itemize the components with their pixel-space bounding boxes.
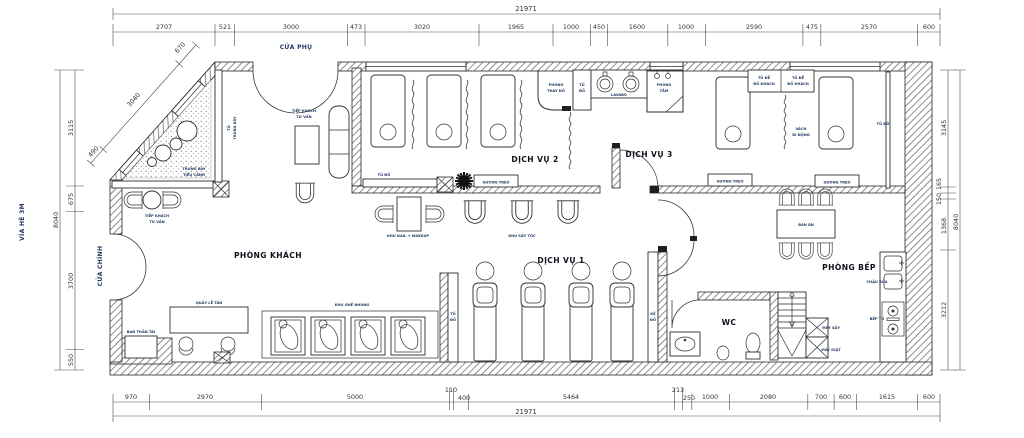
dim-left-2: 3700 [67,273,75,289]
guest-cabinet-label-1: TỦ ĐỂ [758,75,771,80]
nail-makeup-area: KHU NAIL + MAKEUP [375,197,444,238]
dimension-chain-bottom: 21971 970 2970 5000 110 400 5464 213 250… [113,386,940,422]
altar: BAN THẦN TÀI [125,329,157,358]
side-door-leaf [253,71,295,113]
dim-top-2: 3000 [283,23,299,31]
dining-table-group: BÀN ĂN [777,189,835,259]
curtain [520,80,522,149]
dim-diag-1: 3040 [125,91,142,108]
dim-bottom-12: 1615 [879,393,895,401]
dim-right-2: 150 [935,193,943,205]
dim-top-0: 2707 [156,23,172,31]
dryer-chair [557,201,580,224]
dim-bottom-5: 5464 [563,393,579,401]
mirror-label: GƯƠNG TREO [482,181,509,185]
dim-bottom-3: 110 [445,386,457,394]
dim-top-7: 450 [593,23,605,31]
reception-seating-label-2: TƯ VẤN [149,219,164,224]
column-pillar [213,181,229,197]
dimension-chain-left: 3115 675 3700 550 8040 VỈA HÈ 3M [18,70,84,370]
dining-chair [798,189,814,205]
shelf-label-2: ĐỒ [650,317,656,322]
dim-bottom-13: 600 [923,393,935,401]
locker-cabinet: TỦ ĐỒ [573,70,591,110]
massage-bed [481,75,515,147]
kitchen-label: PHÒNG BẾP [822,262,876,272]
hair-dry-area-label: KHU SẤY TÓC [508,233,536,238]
reception-desk-label: QUẦY LỄ TÂN [196,300,223,305]
washer-unit: MÁY GIẶT [806,337,841,358]
dim-right-1: 165 [935,178,943,190]
round-table [143,191,161,209]
dim-bottom-1: 2970 [197,393,213,401]
curtain [412,80,414,149]
lavabo-label: LAVABO [611,93,627,97]
main-door-leaf [113,267,146,300]
lobby-label: PHÒNG KHÁCH [234,251,302,260]
guest-cabinet-label-1: TỦ ĐỂ [792,75,805,80]
service1-label: DỊCH VỤ 1 [537,256,584,265]
dim-bottom-7: 250 [683,394,695,402]
locker-label: TỦ ĐỒ [877,121,890,126]
reception-seating-label-2: TƯ VẤN [296,114,311,119]
dining-chair [817,189,833,205]
wc-sink [670,332,700,356]
dim-right-total: 8040 [952,214,960,230]
side-door-label: CỬA PHỤ [280,43,313,51]
mirror: GƯƠNG TREO [708,174,752,186]
mirror-label: GƯƠNG TREO [716,180,743,184]
velvet-chair-area: KHU GHẾ NHUNG [262,301,438,358]
main-door-leaf [113,234,146,267]
floor-plan-drawing: 21971 2707 521 3000 473 3020 1965 1000 4… [0,0,1024,438]
dim-total-top: 21971 [515,5,537,13]
locker-label-1: TỦ [579,82,584,87]
guest-cabinet-label-2: ĐỒ KHÁCH [753,81,775,86]
dryer-label: MÁY SẤY [822,325,840,330]
dimension-chain-right: 3145 165 150 1368 3212 8040 [935,70,966,370]
guest-cabinet-label-2: ĐỒ KHÁCH [787,81,809,86]
dim-total-bottom: 21971 [515,408,537,416]
reception-desk: QUẦY LỄ TÂN [170,300,248,355]
dining-chair [779,189,795,205]
kitchen-sink-label: CHẬU RỬA [866,279,887,284]
armchair [295,183,315,203]
dim-bottom-2: 5000 [347,393,363,401]
washer-label: MÁY GIẶT [821,347,841,352]
shelf-label-1: KỆ [650,311,656,316]
dim-left-0: 3115 [67,120,75,136]
dim-bottom-10: 700 [815,393,827,401]
dining-chair [798,243,814,259]
dim-bottom-0: 970 [125,393,137,401]
dim-right-0: 3145 [940,120,948,136]
styling-station [569,262,593,361]
locker-shelf [363,179,437,187]
armchair [163,191,181,209]
wc-toilet [746,333,760,359]
dim-top-4: 3020 [414,23,430,31]
dim-right-3: 1368 [940,218,948,234]
locker-label: TỦ ĐỒ [378,172,391,177]
recliner-chair [311,317,345,355]
dining-table-label: BÀN ĂN [798,222,814,227]
reception-seating-label-1: TIẾP KHÁCH [292,107,316,113]
partition-label-2: DI ĐỘNG [792,132,810,137]
wc-urinal [717,346,729,360]
dryer-unit: MÁY SẤY [806,318,840,337]
wc-room: WC [670,318,760,360]
massage-bed [716,77,750,149]
curtain [466,80,468,149]
service3: DỊCH VỤ 3 TỦ ĐỂ ĐỒ KHÁCH TỦ ĐỂ ĐỒ KHÁCH … [625,70,890,188]
altar-label: BAN THẦN TÀI [127,329,156,334]
velvet-chairs-label: KHU GHẾ NHUNG [335,301,370,307]
side-door-leaf [296,71,338,113]
column-pillar [214,352,230,363]
bathroom: PHÒNG TẮM [647,70,683,112]
nail-area-label: KHU NAIL + MAKEUP [387,234,429,238]
dim-bottom-9: 2080 [760,393,776,401]
curtain [569,112,571,169]
dim-left-total: 8040 [52,212,60,228]
dim-diag-2: 490 [86,144,100,158]
dim-top-12: 2570 [861,23,877,31]
side-table [295,126,319,164]
curtain [784,95,786,149]
locker-label-1: TỦ [450,311,455,316]
dim-left-3: 550 [67,354,75,366]
recliner-chair [391,317,425,355]
garden-stone [177,121,197,141]
recliner-chair [351,317,385,355]
display-cabinet [215,70,222,182]
bathroom-label-2: TẮM [660,88,669,93]
armchair [124,191,142,209]
mirror: GƯƠNG TREO [815,175,859,187]
armchair [426,205,444,223]
garden-stone [155,145,171,161]
dim-top-11: 475 [806,23,818,31]
styling-station [521,262,545,361]
dryer-chair [511,201,534,224]
massage-bed [371,75,405,147]
plant-symbol [455,172,473,190]
dining-chair [779,243,795,259]
dim-diag-0: 670 [173,41,187,55]
dim-top-1: 521 [219,23,231,31]
mirror: GƯƠNG TREO [474,175,518,187]
display-garden: TRƯNG BÀY TIỂU CẢNH TỦ TRUNG BÀY [112,70,237,197]
wc-door-leaf [672,300,700,328]
dim-bottom-6: 213 [672,386,684,394]
lavabo-counter: LAVABO [591,70,647,98]
dim-top-8: 1600 [629,23,645,31]
changing-room: PHÒNG THAY ĐỒ [538,70,573,110]
column-pillar [437,177,453,192]
dim-top-5: 1965 [508,23,524,31]
reception-seating-label-1: TIẾP KHÁCH [145,212,169,218]
armchair [375,205,393,223]
dining-chair [817,243,833,259]
garden-label-2: TIỂU CẢNH [183,172,205,177]
main-door-label: CỬA CHÍNH [96,246,104,287]
dim-bottom-8: 1000 [702,393,718,401]
wardrobe-counter [886,72,890,188]
massage-bed [819,77,853,149]
hair-dry-area: KHU SẤY TÓC [464,201,580,238]
dim-top-9: 1000 [678,23,694,31]
service2: DỊCH VỤ 2 TỦ ĐỒ GƯƠNG TREO PHÒNG THAY ĐỒ [363,70,683,192]
dimension-chain-top: 21971 2707 521 3000 473 3020 1965 1000 4… [113,5,940,46]
dim-top-3: 473 [350,23,362,31]
dim-top-13: 600 [923,23,935,31]
display-cabinet-label-1: TỦ [226,125,231,130]
interior-door-leaf [658,200,694,236]
changing-room-label-1: PHÒNG [549,82,564,87]
guest-cabinet: TỦ ĐỂ ĐỒ KHÁCH TỦ ĐỂ ĐỒ KHÁCH [748,70,814,92]
dim-right-4: 3212 [940,302,948,318]
bathroom-label-1: PHÒNG [657,82,672,87]
garden-ledge [112,181,215,188]
dim-bottom-4: 400 [458,394,470,402]
garden-stone [148,158,157,167]
partition-label-1: VÁCH [796,126,807,131]
garden-label-1: TRƯNG BÀY [182,166,206,171]
service3-label: DỊCH VỤ 3 [625,150,672,159]
display-cabinet-label-2: TRUNG BÀY [232,116,237,140]
changing-room-label-2: THAY ĐỒ [547,88,565,93]
dim-top-10: 2590 [746,23,762,31]
dryer-chair [464,201,487,224]
mirror-label: GƯƠNG TREO [823,181,850,185]
garden-stone [170,138,182,150]
sofa [329,106,349,178]
recliner-chair [271,317,305,355]
locker-label-2: ĐỒ [579,88,585,93]
dim-top-6: 1000 [563,23,579,31]
window-top-1 [366,62,466,71]
styling-station [610,262,634,361]
dim-left-1: 675 [67,193,75,205]
massage-bed [427,75,461,147]
wc-label: WC [722,318,737,327]
stairs: MÁY SẤY MÁY GIẶT [778,292,841,358]
dim-bottom-11: 600 [839,393,851,401]
locker-label-2: ĐỒ [450,317,456,322]
floor-plan-page: 21971 2707 521 3000 473 3020 1965 1000 4… [0,0,1024,438]
stool [179,337,193,355]
service2-label: DỊCH VỤ 2 [511,155,558,164]
styling-station [473,262,497,361]
sidewalk-label: VỈA HÈ 3M [18,203,26,241]
